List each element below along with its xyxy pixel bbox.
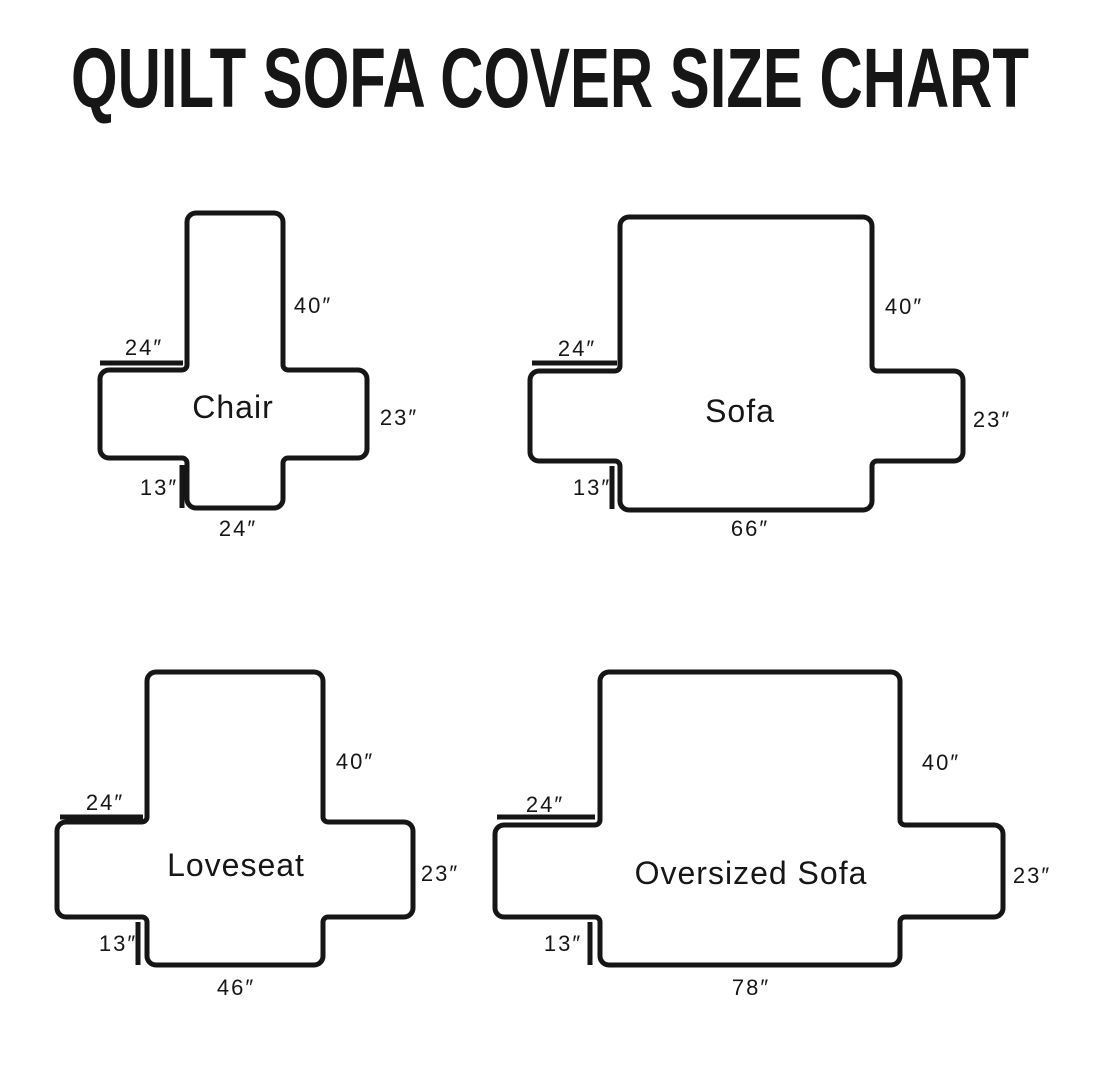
chair-diagram: 40″ 24″ Chair 23″ 13″ 24″	[100, 213, 418, 541]
sofa-name-label: Sofa	[705, 393, 775, 429]
size-chart-canvas: QUILT SOFA COVER SIZE CHART 40″ 24″ Chai…	[0, 0, 1100, 1092]
sofa-skirt-height-label: 13″	[573, 475, 611, 500]
sofa-diagram: 40″ 24″ Sofa 23″ 13″ 66″	[530, 217, 1011, 541]
oversized-sofa-side-height-label: 23″	[1013, 863, 1051, 888]
size-chart-page: QUILT SOFA COVER SIZE CHART 40″ 24″ Chai…	[0, 0, 1100, 1092]
oversized-sofa-name-label: Oversized Sofa	[635, 855, 868, 891]
chair-name-label: Chair	[192, 389, 273, 425]
chair-skirt-height-label: 13″	[140, 475, 178, 500]
loveseat-arm-width-label: 24″	[86, 790, 124, 815]
loveseat-diagram: 40″ 24″ Loveseat 23″ 13″ 46″	[57, 672, 459, 1000]
loveseat-skirt-height-label: 13″	[99, 931, 137, 956]
oversized-sofa-arm-width-label: 24″	[526, 792, 564, 817]
oversized-sofa-skirt-height-label: 13″	[544, 931, 582, 956]
loveseat-side-height-label: 23″	[421, 861, 459, 886]
oversized-sofa-back-height-label: 40″	[922, 750, 960, 775]
chair-seat-width-label: 24″	[219, 516, 257, 541]
sofa-back-height-label: 40″	[885, 294, 923, 319]
chair-arm-width-label: 24″	[125, 335, 163, 360]
loveseat-back-height-label: 40″	[336, 749, 374, 774]
sofa-side-height-label: 23″	[973, 407, 1011, 432]
sofa-arm-width-label: 24″	[558, 336, 596, 361]
oversized-sofa-seat-width-label: 78″	[732, 975, 770, 1000]
loveseat-name-label: Loveseat	[167, 847, 305, 883]
page-title: QUILT SOFA COVER SIZE CHART	[71, 31, 1029, 125]
sofa-seat-width-label: 66″	[731, 516, 769, 541]
chair-back-height-label: 40″	[294, 293, 332, 318]
chair-side-height-label: 23″	[380, 405, 418, 430]
loveseat-seat-width-label: 46″	[217, 975, 255, 1000]
oversized-sofa-diagram: 40″ 24″ Oversized Sofa 23″ 13″ 78″	[495, 672, 1051, 1000]
